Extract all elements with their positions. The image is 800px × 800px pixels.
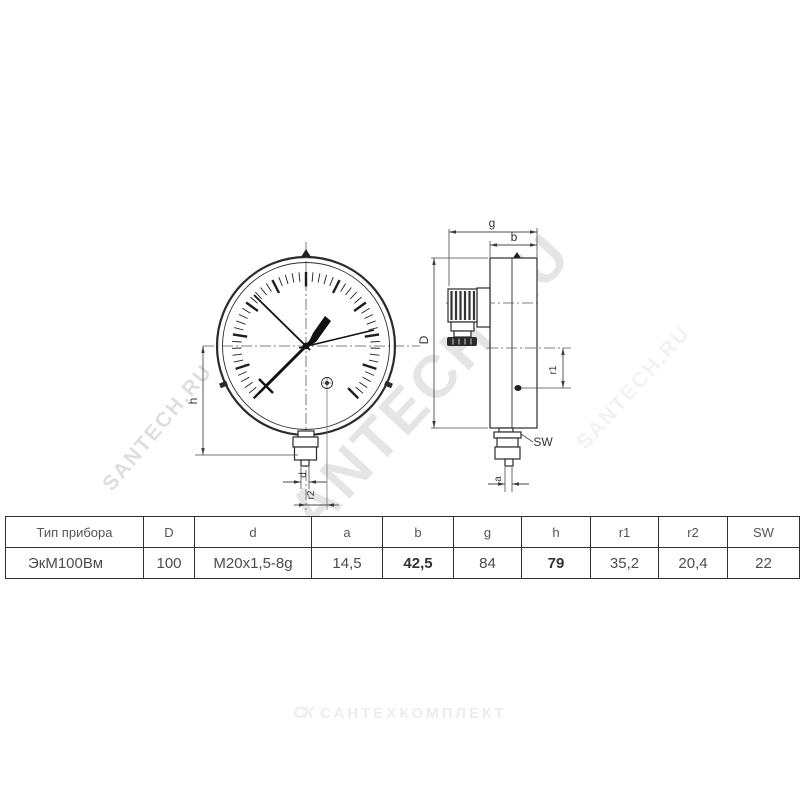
- dim-b: b: [490, 230, 537, 257]
- dim-h: h: [186, 346, 298, 455]
- dim-SW: SW: [521, 434, 553, 449]
- spec-value-9: 22: [728, 548, 800, 579]
- pointer-setpoint-upper: [254, 295, 310, 350]
- label-g: g: [489, 216, 496, 230]
- spec-header-4: b: [383, 517, 454, 548]
- adjust-screw: [322, 378, 333, 389]
- spec-value-3: 14,5: [312, 548, 383, 579]
- spec-value-5: 84: [454, 548, 522, 579]
- spec-header-2: d: [195, 517, 312, 548]
- label-a: a: [493, 476, 504, 482]
- spec-value-7: 35,2: [591, 548, 659, 579]
- front-view: h d r2: [186, 242, 420, 510]
- page-root: { "watermarks": { "main": "SANTECH.RU", …: [0, 0, 800, 800]
- side-view: g b D: [417, 216, 571, 492]
- brand-logo: СК САНТЕХКОМПЛЕКТ: [0, 701, 800, 725]
- label-d: d: [298, 472, 309, 478]
- spec-value-4: 42,5: [383, 548, 454, 579]
- spec-header-8: r2: [659, 517, 728, 548]
- pointer-main: [266, 334, 318, 386]
- case-body: [490, 258, 537, 428]
- spec-header-5: g: [454, 517, 522, 548]
- spec-value-8: 20,4: [659, 548, 728, 579]
- spec-header-6: h: [522, 517, 591, 548]
- spec-value-6: 79: [522, 548, 591, 579]
- side-stem: [494, 428, 521, 466]
- spec-header-3: a: [312, 517, 383, 548]
- spec-header-7: r1: [591, 517, 659, 548]
- spec-value-1: 100: [144, 548, 195, 579]
- spec-value-0: ЭкМ100Вм: [6, 548, 144, 579]
- needle-hub: [303, 343, 310, 350]
- dim-r2: r2: [294, 490, 339, 507]
- technical-drawing: h d r2 g: [0, 0, 800, 800]
- dim-a: a: [488, 467, 529, 492]
- spec-header-0: Тип прибора: [6, 517, 144, 548]
- dim-d: d: [283, 467, 327, 489]
- label-r1: r1: [548, 365, 559, 374]
- side-screw: [514, 385, 521, 391]
- spec-header-9: SW: [728, 517, 800, 548]
- spec-header-1: D: [144, 517, 195, 548]
- brand-logo-text: САНТЕХКОМПЛЕКТ: [320, 705, 507, 722]
- label-D: D: [417, 335, 431, 344]
- label-b: b: [511, 230, 518, 244]
- label-h: h: [186, 398, 200, 405]
- top-lug: [301, 249, 311, 257]
- label-r2: r2: [306, 490, 317, 499]
- electrical-connector: [447, 288, 490, 346]
- cable-gland: [447, 337, 477, 346]
- dim-r1: r1: [548, 348, 565, 388]
- label-SW: SW: [533, 435, 553, 449]
- spec-value-2: M20x1,5-8g: [195, 548, 312, 579]
- spec-table: Тип прибораDdabghr1r2SWЭкМ100Вм100M20x1,…: [5, 516, 800, 579]
- front-stem: [293, 431, 318, 466]
- brand-logo-icon: СК: [293, 703, 312, 723]
